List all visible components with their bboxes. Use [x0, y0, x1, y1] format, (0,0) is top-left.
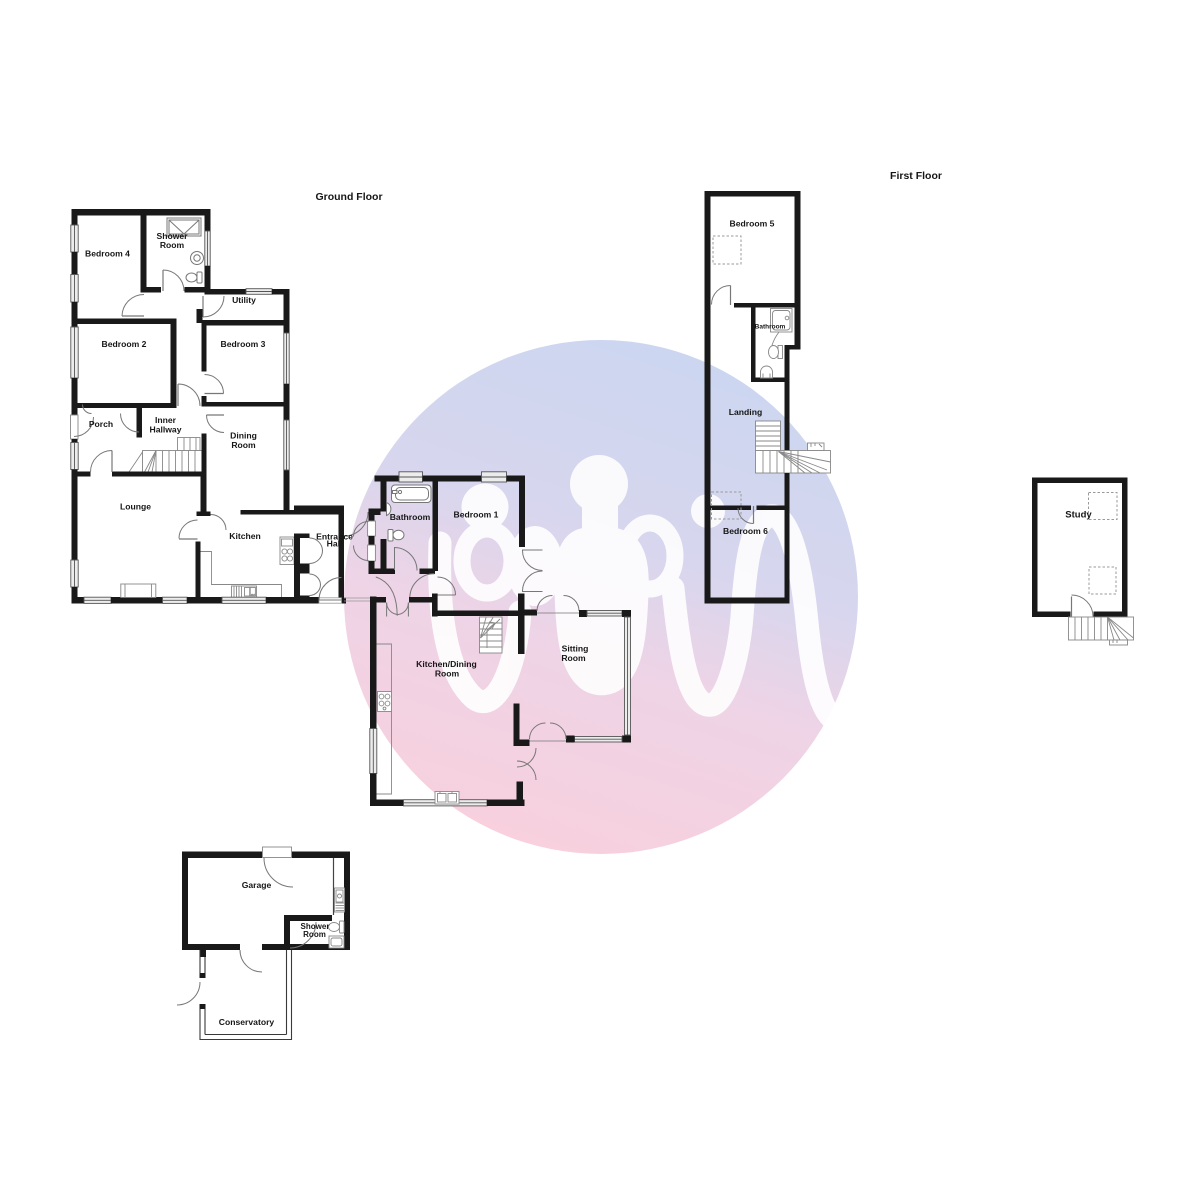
svg-text:Inner: Inner: [155, 415, 177, 425]
svg-text:Bedroom 2: Bedroom 2: [102, 339, 147, 349]
svg-text:Kitchen: Kitchen: [229, 531, 261, 541]
svg-text:Bathroom: Bathroom: [755, 324, 786, 331]
svg-text:Study: Study: [1065, 510, 1092, 521]
svg-text:Room: Room: [435, 669, 460, 679]
svg-text:Room: Room: [561, 653, 586, 663]
svg-text:Sitting: Sitting: [562, 644, 589, 654]
svg-text:Bedroom 5: Bedroom 5: [730, 219, 775, 229]
svg-text:Lounge: Lounge: [120, 502, 151, 512]
svg-text:Hall: Hall: [327, 539, 343, 549]
svg-text:Bedroom 1: Bedroom 1: [454, 510, 499, 520]
svg-text:Room: Room: [160, 240, 185, 250]
svg-text:Bedroom 6: Bedroom 6: [723, 526, 768, 536]
svg-text:Porch: Porch: [89, 419, 113, 429]
svg-text:Room: Room: [231, 440, 256, 450]
svg-text:First Floor: First Floor: [890, 170, 942, 182]
svg-text:Bathroom: Bathroom: [390, 512, 431, 522]
svg-text:Kitchen/Dining: Kitchen/Dining: [416, 659, 477, 669]
svg-text:Garage: Garage: [242, 880, 272, 890]
svg-text:Room: Room: [303, 930, 326, 939]
svg-text:Ground Floor: Ground Floor: [315, 191, 382, 203]
svg-text:Bedroom 4: Bedroom 4: [85, 249, 130, 259]
svg-text:Bedroom 3: Bedroom 3: [221, 339, 266, 349]
svg-text:Utility: Utility: [232, 295, 256, 305]
svg-text:Conservatory: Conservatory: [219, 1017, 275, 1027]
svg-text:Landing: Landing: [729, 407, 762, 417]
svg-text:Hallway: Hallway: [149, 425, 181, 435]
svg-text:Dining: Dining: [230, 431, 257, 441]
